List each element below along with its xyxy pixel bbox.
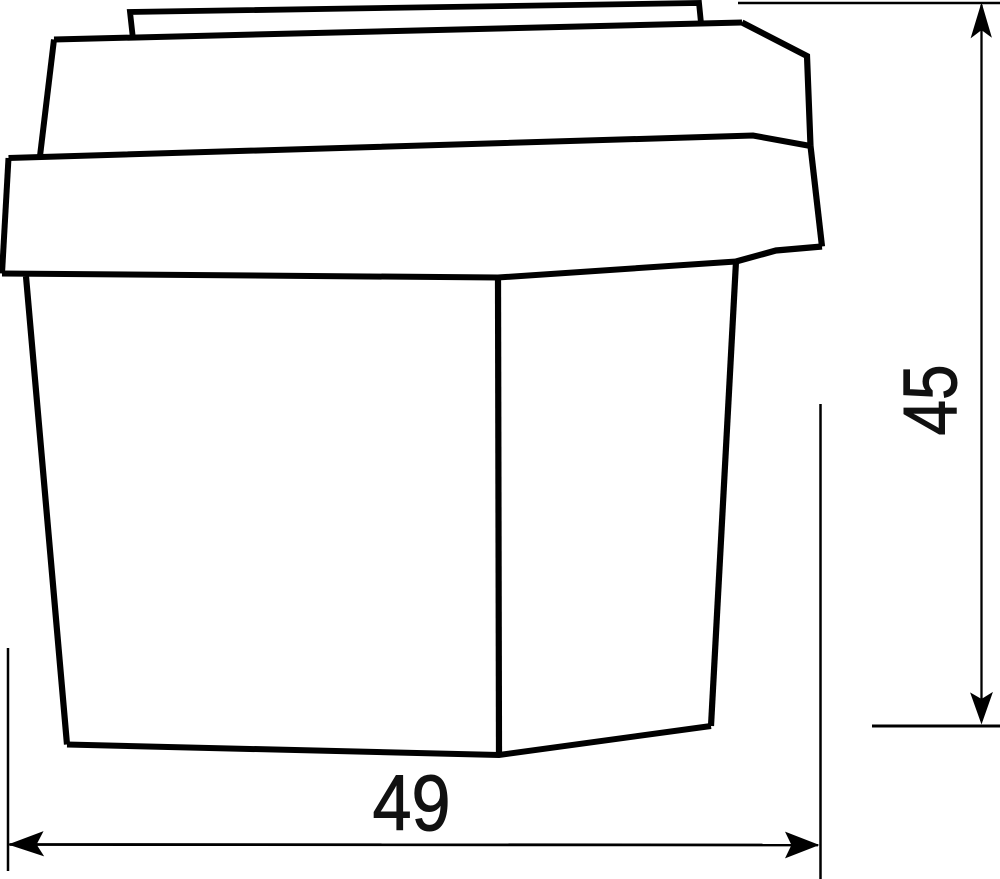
svg-text:49: 49 xyxy=(373,758,451,847)
svg-text:45: 45 xyxy=(889,365,974,436)
